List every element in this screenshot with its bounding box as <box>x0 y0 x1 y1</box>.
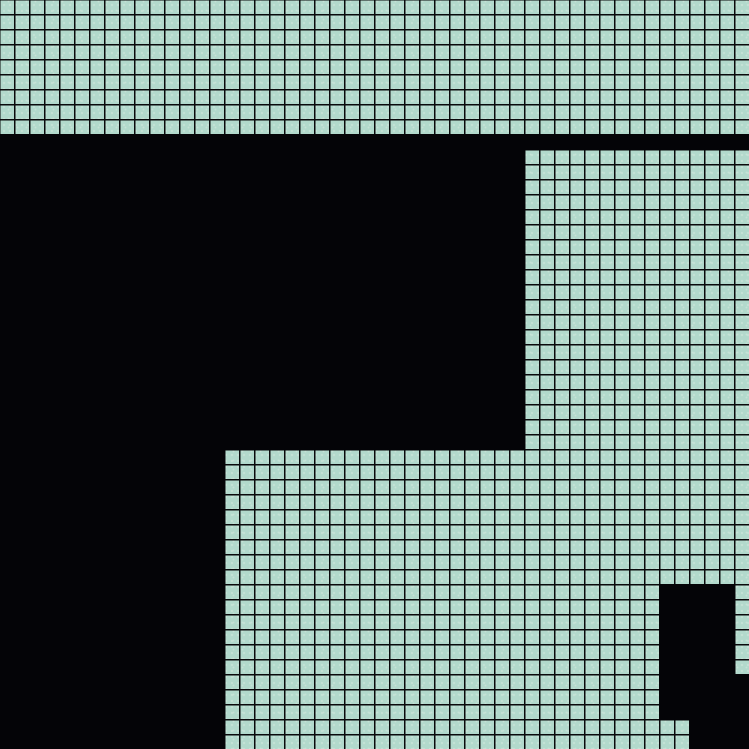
black-region-bottom-right-lower <box>689 719 749 749</box>
black-regions-layer <box>0 0 749 749</box>
grid-surface <box>0 0 749 749</box>
black-region-upper-left-block <box>0 134 525 450</box>
black-region-bottom-right-upper <box>659 584 735 675</box>
black-region-lower-left-column <box>0 449 225 749</box>
black-region-bottom-right-middle <box>659 674 749 720</box>
